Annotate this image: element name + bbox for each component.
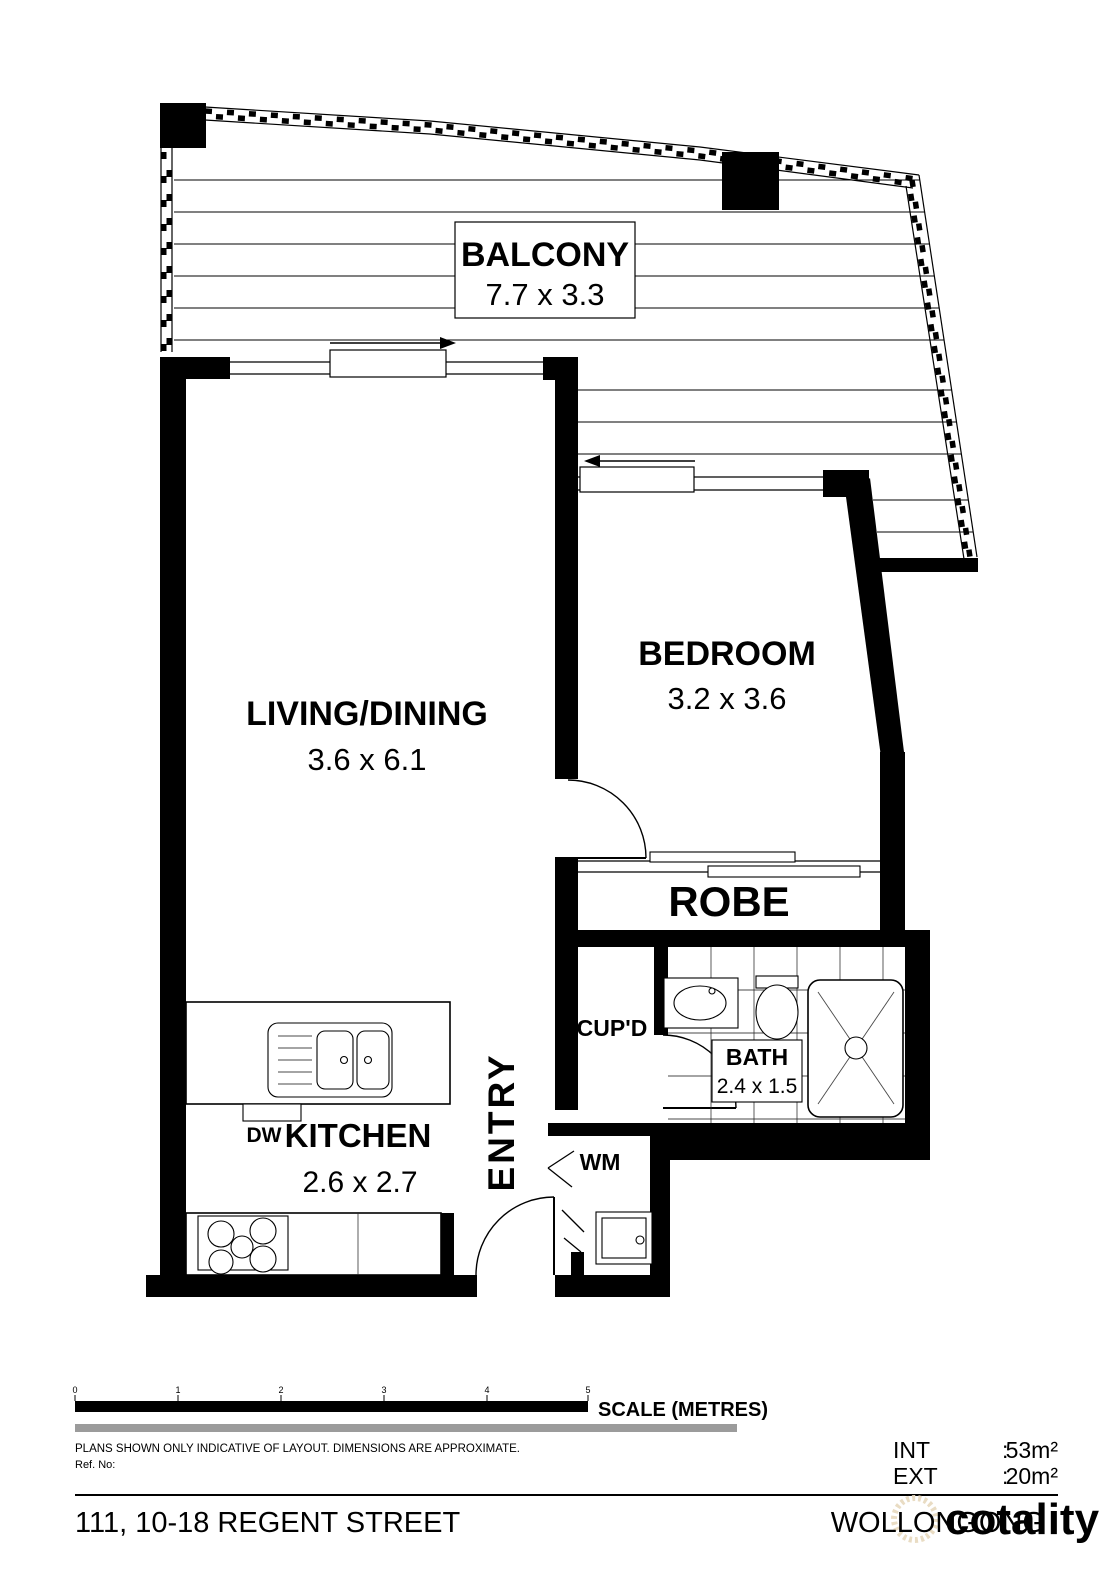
front-door-arc [476,1197,554,1275]
scale-tick-1: 1 [175,1385,180,1395]
kitchen-dims: 2.6 x 2.7 [302,1166,417,1199]
hatch-top-outer-line [205,107,919,175]
wall-kitchen-bottom [146,1275,477,1297]
hatch-right-checker-b [909,183,967,558]
wall-bath-bottom-band [548,1123,930,1136]
vanity-tap [709,988,715,994]
suburb-text: WOLLONGONG [831,1507,1045,1539]
scale-tick-4: 4 [484,1385,489,1395]
scale-bar: 0 1 2 3 4 5 SCALE (METRES) [72,1385,768,1432]
scale-bar-gray [75,1424,737,1432]
toilet-bowl [756,985,798,1039]
bedroom-slider-panel [580,467,694,492]
kitchen-label: KITCHEN [285,1117,432,1154]
room-labels: LIVING/DINING 3.6 x 6.1 BEDROOM 3.2 x 3.… [246,635,816,1199]
robe-slider-panel-b [708,866,860,877]
scale-tick-0: 0 [72,1385,77,1395]
wall-wm-bottom [555,1275,670,1297]
footer: 0 1 2 3 4 5 SCALE (METRES) PLANS SHOWN O… [72,1385,1099,1544]
hatch-right-inner-line [906,186,964,559]
scale-tick-2: 2 [278,1385,283,1395]
living-slider-arrowhead [440,337,456,349]
scale-tick-marks [75,1395,588,1401]
robe-slider-panel-a [650,852,795,862]
wall-frontdoor-stub [571,1252,584,1275]
balcony-label: BALCONY [461,236,629,274]
scale-tick-3: 3 [381,1385,386,1395]
bedroom-door-arc [568,780,646,858]
wall-right-robe-level [880,752,905,947]
robe-label: ROBE [668,878,789,925]
bedroom-slider-arrowhead [584,455,600,467]
area-summary: INT : 53m² EXT : 20m² [893,1437,1058,1489]
wall-balcony-topleft-block [160,103,206,148]
dw-label: DW [247,1124,282,1147]
int-value: 53m² [1006,1437,1059,1463]
wm-closet [596,1212,652,1264]
wall-bedroom-topleft-jamb [556,466,578,496]
bathroom: BATH 2.4 x 1.5 [664,947,905,1123]
wall-left [160,357,186,1297]
address-text: 111, 10-18 REGENT STREET [75,1507,460,1539]
balcony-hatch-left [161,148,172,352]
bath-dims: 2.4 x 1.5 [717,1075,798,1098]
hatch-top-inner-line [205,120,913,188]
scale-tick-5: 5 [585,1385,590,1395]
washing-machine-knob [636,1236,644,1244]
int-label: INT [893,1437,930,1463]
vanity-basin [674,986,726,1020]
bedroom-label: BEDROOM [638,635,816,673]
wall-balcony-bottom [878,558,978,572]
bath-label: BATH [726,1044,788,1070]
wall-bedroom-diagonal [846,478,904,757]
cupd-label: CUP'D [577,1015,648,1041]
living-slider-panel [330,350,446,377]
wall-bath-right [905,947,930,1137]
sink-drain-left [341,1057,348,1064]
ref-no-label: Ref. No: [75,1459,115,1471]
wall-balcony-pillar [722,152,779,210]
wall-living-top-left [163,357,230,379]
scale-label: SCALE (METRES) [598,1399,768,1421]
wall-robe-bottom [578,930,930,947]
shower-drain [845,1037,867,1059]
disclaimer-text: PLANS SHOWN ONLY INDICATIVE OF LAYOUT. D… [75,1443,520,1455]
bedroom-dims: 3.2 x 3.6 [668,681,787,716]
wall-bath-bottom-thick [655,1135,930,1160]
wall-wm-right [650,1135,670,1297]
sink-drain-right [365,1057,372,1064]
floorplan-canvas: BALCONY 7.7 x 3.3 [0,0,1120,1584]
ext-value: 20m² [1006,1463,1059,1489]
wm-label: WM [580,1149,621,1175]
balcony-dims: 7.7 x 3.3 [486,277,605,312]
entry-label: ENTRY [481,1052,522,1191]
wall-kitchen-entry-stub [441,1213,454,1275]
living-label: LIVING/DINING [246,695,488,733]
wall-robe-cupd-left [555,857,578,1110]
scale-bar-black [75,1401,588,1412]
ext-label: EXT [893,1463,938,1489]
balcony-hatch-top [205,107,919,188]
sink-basin-right [357,1031,389,1089]
balcony-hatch-right [906,175,977,559]
living-dims: 3.6 x 6.1 [308,742,427,777]
